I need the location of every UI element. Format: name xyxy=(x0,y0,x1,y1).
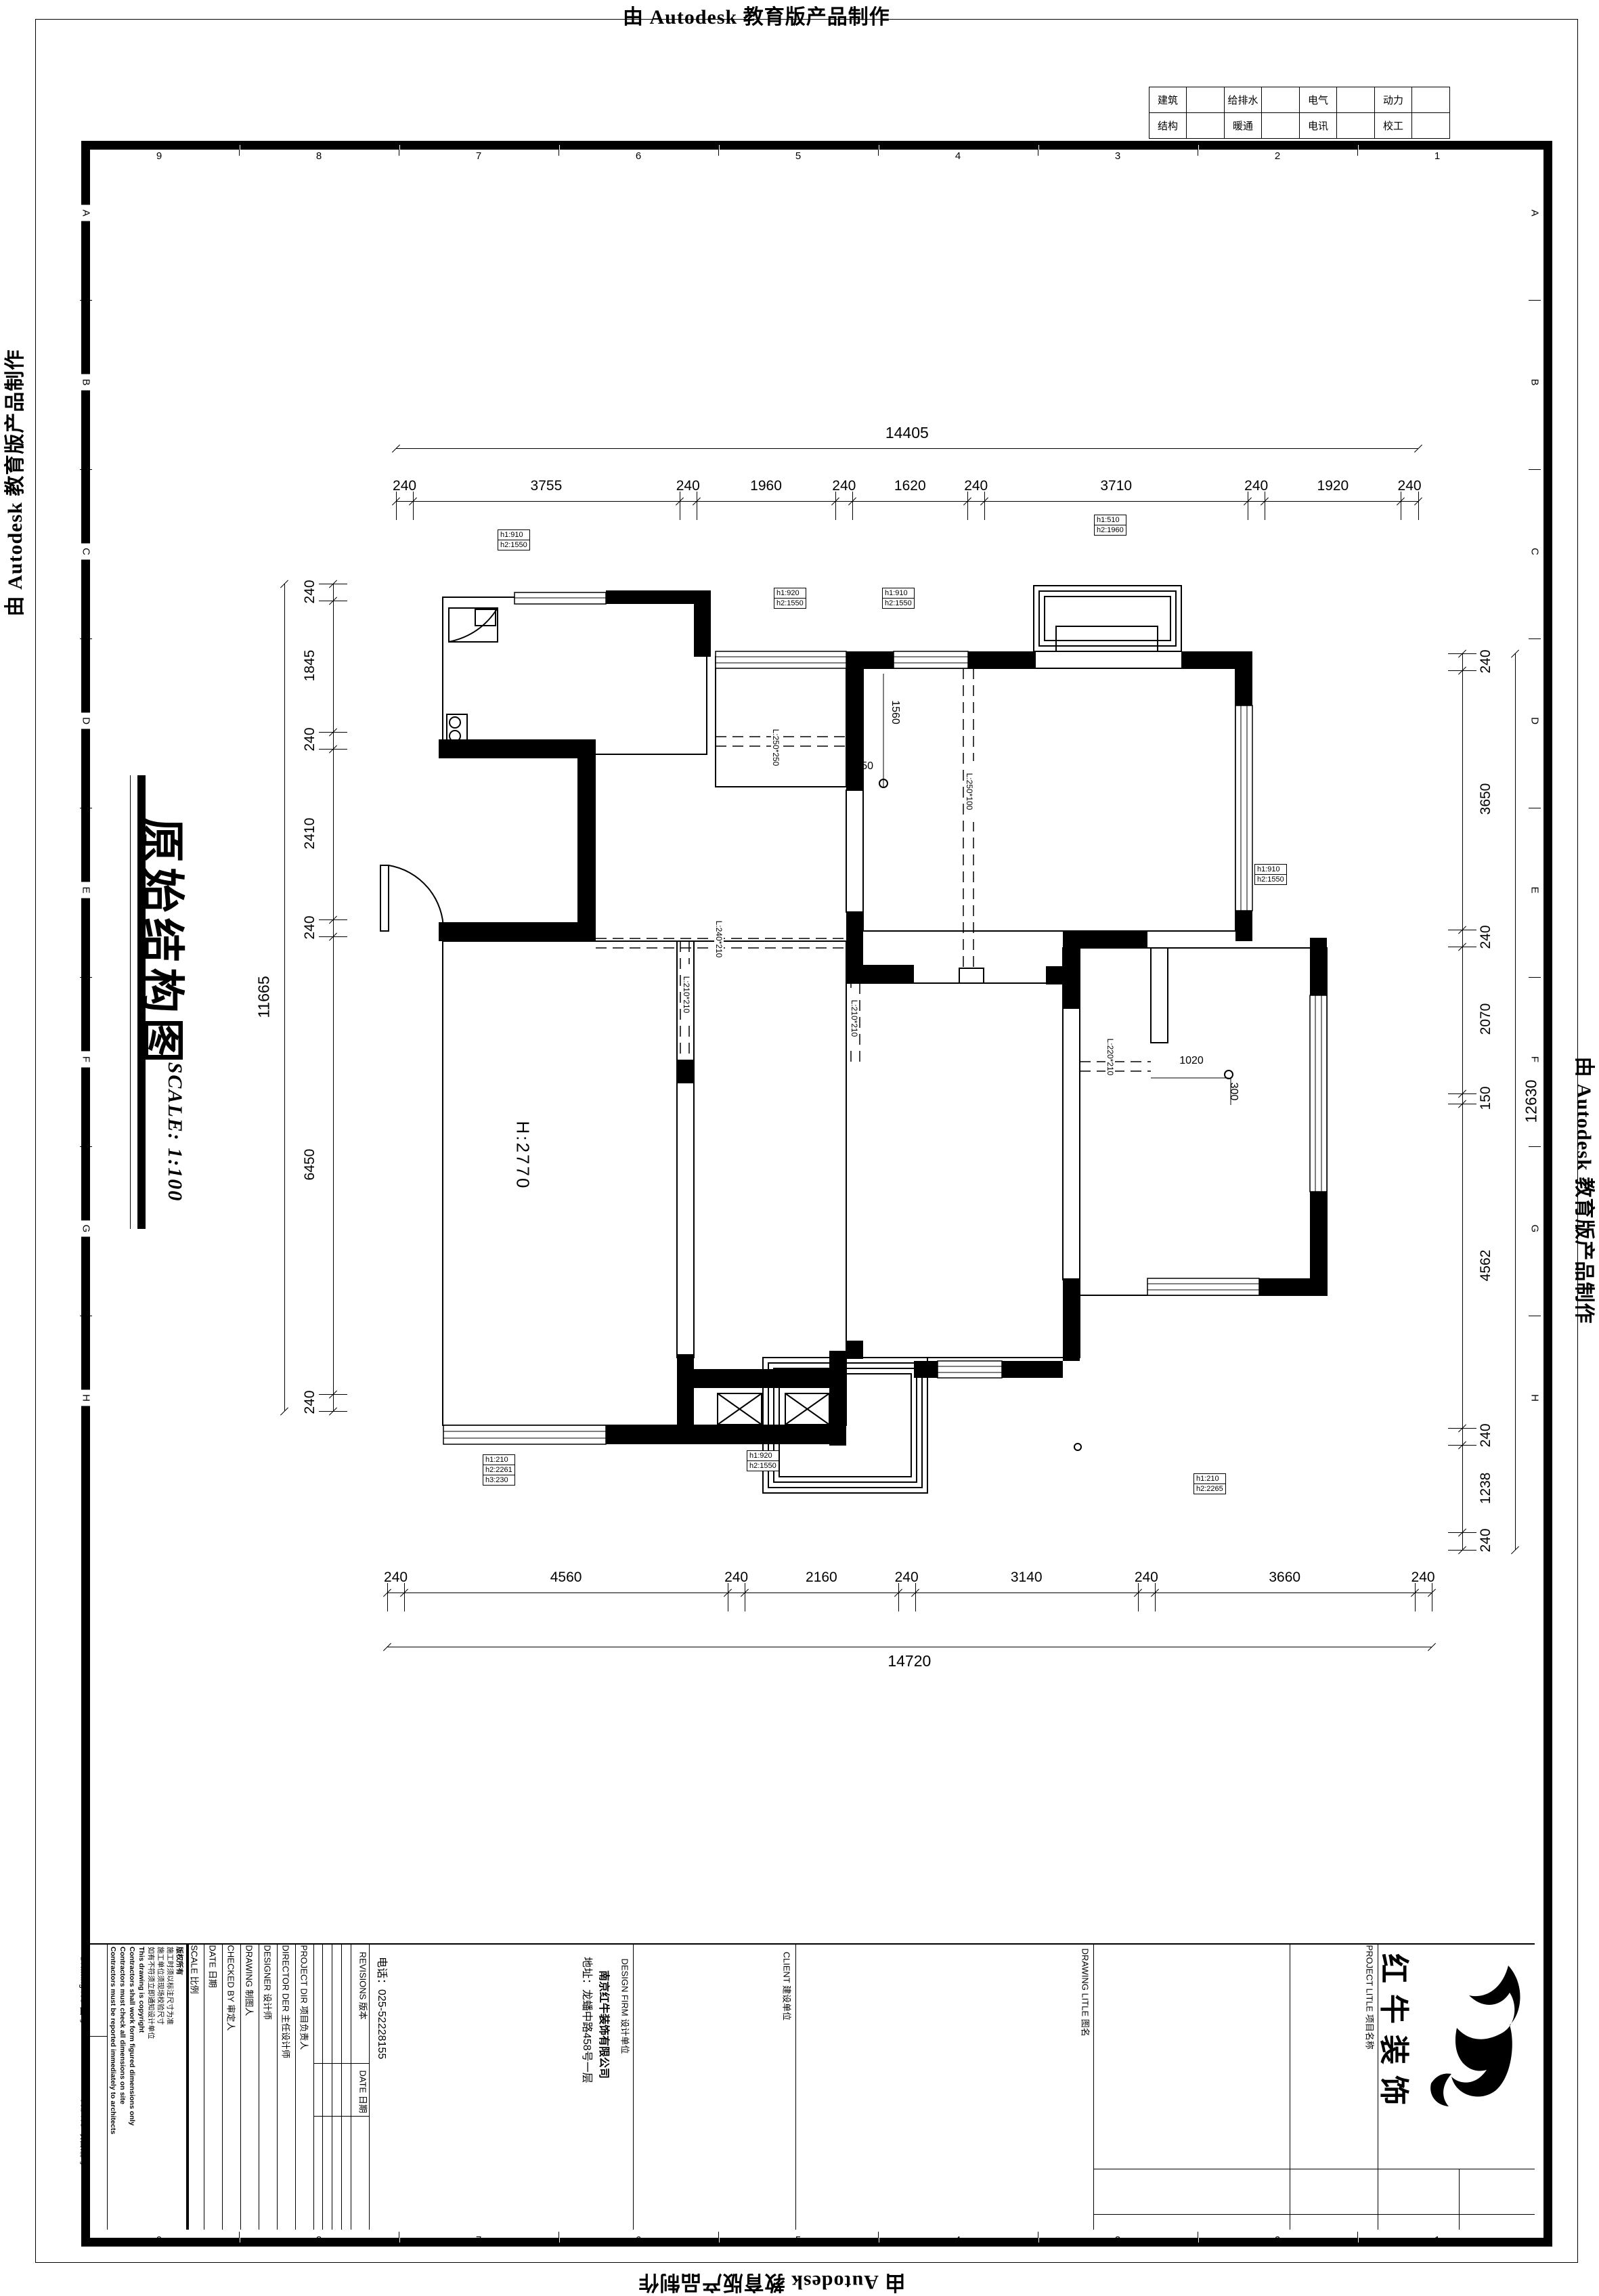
dim-label: 240 xyxy=(946,478,1007,494)
grid-ref-number: 2 xyxy=(1269,150,1286,162)
dim-label: 2160 xyxy=(791,1569,852,1586)
drawing-sheet: 由 Autodesk 教育版产品制作 由 Autodesk 教育版产品制作 由 … xyxy=(0,0,1599,2296)
window-height-row: h1:920 xyxy=(747,1451,779,1460)
dim-label: 3660 xyxy=(1254,1569,1315,1586)
design-firm-label: DESIGN FIRM 设计单位 xyxy=(619,1959,632,2094)
beam-size-label: L:250*100 xyxy=(965,761,974,822)
title-block-divider xyxy=(322,1945,323,2230)
room-height-label: H:2770 xyxy=(512,1115,533,1196)
dim-total-label: 14405 xyxy=(867,424,948,442)
dim-label: 3710 xyxy=(1086,478,1147,494)
grid-ref-letter: H xyxy=(1529,1390,1541,1406)
dim-ext xyxy=(1138,1583,1139,1611)
dim-ext xyxy=(1415,1583,1416,1611)
copyright-notes: 版权所有 施工时须以标注尺寸为准 施工单位须现场校验尺寸 如有不符须立即通知设计… xyxy=(105,1947,184,2228)
dim-ext xyxy=(396,492,397,520)
dim-ext xyxy=(1401,492,1401,520)
title-block-line xyxy=(1459,2169,1460,2230)
dim-ext xyxy=(1448,1532,1476,1533)
drawing-title-label: DRAWING LITLE 图名 xyxy=(1080,1949,1093,2084)
grid-ref-letter: E xyxy=(81,882,92,898)
dim-total-label: 14720 xyxy=(869,1652,950,1670)
consultant-cell: 给排水 xyxy=(1225,87,1262,113)
grid-tick xyxy=(1529,1146,1541,1147)
grid-tick xyxy=(80,977,92,978)
title-block-divider xyxy=(240,1945,241,2230)
autodesk-stamp-top: 由 Autodesk 教育版产品制作 xyxy=(623,0,890,30)
dim-ext xyxy=(680,492,680,520)
inline-dim: 1020 xyxy=(1171,1055,1212,1067)
dim-label: 3650 xyxy=(1478,768,1494,829)
title-block-divider xyxy=(277,1945,278,2230)
design-firm-company: 南京红牛装饰有限公司 xyxy=(597,1970,613,2106)
grid-ref-number: 9 xyxy=(151,150,167,162)
grid-ref-number: 1 xyxy=(1429,2234,1445,2246)
tb-col-projectdir: PROJECT DIR 项目负责人 xyxy=(299,1945,311,2081)
dim-ext xyxy=(852,492,853,520)
dim-label: 240 xyxy=(706,1569,767,1586)
title-block-line xyxy=(313,2063,369,2064)
dim-label: 240 xyxy=(1393,1569,1453,1586)
inline-dim: 350 xyxy=(833,760,873,773)
grid-tick xyxy=(1529,1316,1541,1316)
dim-label: 4560 xyxy=(535,1569,596,1586)
window-height-label: h1:910h2:1550 xyxy=(498,529,530,550)
dim-label: 240 xyxy=(1226,478,1287,494)
grid-ref-letter: C xyxy=(81,544,92,560)
grid-ref-number: 1 xyxy=(1429,150,1445,162)
title-block-divider xyxy=(795,1945,796,2230)
dim-total-line xyxy=(1515,653,1516,1550)
grid-tick xyxy=(399,2232,400,2243)
dim-ext xyxy=(1155,1583,1156,1611)
brand-logo-bull xyxy=(1422,1960,1530,2119)
grid-ref-number: 8 xyxy=(311,150,327,162)
design-firm-phone: 电话：025-52228155 xyxy=(375,1957,391,2126)
grid-ref-letter: A xyxy=(1529,205,1541,221)
dim-ext xyxy=(319,919,347,920)
dim-line xyxy=(1462,653,1463,1550)
dim-label: 240 xyxy=(1379,478,1440,494)
page-title: 原始结构图 xyxy=(148,818,198,1041)
dim-ext xyxy=(1265,492,1265,520)
grid-ref-number: 3 xyxy=(1110,150,1126,162)
beam-size-label: L:240*210 xyxy=(714,909,724,970)
grid-tick xyxy=(1357,2232,1359,2243)
window xyxy=(716,651,846,668)
consultant-cell: 电讯 xyxy=(1300,113,1337,139)
dim-ext xyxy=(319,936,347,937)
dim-line xyxy=(387,1593,1432,1593)
title-block-divider xyxy=(351,1945,351,2230)
dim-total-line xyxy=(387,1647,1432,1647)
window-height-label: h1:920h2:1550 xyxy=(774,588,806,609)
title-block-line xyxy=(1093,2169,1535,2169)
autodesk-stamp-left: 由 Autodesk 教育版产品制作 xyxy=(0,266,28,699)
grid-tick xyxy=(1198,145,1199,156)
title-block-line xyxy=(1093,2214,1535,2215)
scale-label: SCALE: 1:100 xyxy=(159,1051,186,1213)
grid-tick xyxy=(1529,469,1541,470)
autodesk-stamp-bottom: 由 Autodesk 教育版产品制作 xyxy=(555,2270,988,2296)
beam-size-label: L:250*250 xyxy=(771,717,781,778)
window xyxy=(1310,995,1327,1192)
consultant-cell: 动力 xyxy=(1375,87,1412,113)
dim-label: 1620 xyxy=(879,478,940,494)
window-height-row: h2:1960 xyxy=(1095,525,1126,535)
tb-col-drawing: DRAWING 制图人 xyxy=(244,1945,257,2081)
dim-ext xyxy=(967,492,968,520)
window-height-row: h1:910 xyxy=(1255,865,1286,874)
floor-plan xyxy=(379,562,1435,1523)
dim-label: 240 xyxy=(366,1569,426,1586)
dim-ext xyxy=(915,1583,916,1611)
brand-name: 红牛装饰 xyxy=(1384,1953,1418,2123)
grid-ref-number: 8 xyxy=(311,2234,327,2246)
window xyxy=(1147,1278,1259,1295)
window-height-row: h2:1550 xyxy=(1255,874,1286,884)
grid-ref-letter: E xyxy=(1529,882,1541,898)
tb-col-designer: DESIGNER 设计师 xyxy=(262,1945,275,2081)
job-no-label: Job NO 项目编号 xyxy=(79,2075,91,2190)
dim-label: 240 xyxy=(374,478,435,494)
tb-col-date: DATE 日期 xyxy=(207,1945,220,2081)
dim-ext xyxy=(1448,1093,1476,1094)
tb-col-director: DIRECTOR DER 主任设计师 xyxy=(280,1945,293,2081)
window-height-label: h1:210h2:2265 xyxy=(1193,1473,1226,1494)
dim-label: 240 xyxy=(876,1569,937,1586)
grid-tick xyxy=(239,145,240,156)
dim-ext xyxy=(1448,947,1476,947)
grid-tick xyxy=(718,2232,720,2243)
window-height-row: h2:1550 xyxy=(883,598,914,608)
dim-ext xyxy=(319,1411,347,1412)
grid-tick xyxy=(80,638,92,639)
title-block-divider xyxy=(259,1945,259,2230)
dim-ext xyxy=(1418,492,1419,520)
grid-tick xyxy=(399,145,400,156)
dim-label: 240 xyxy=(1478,1510,1494,1571)
dim-ext xyxy=(984,492,985,520)
window xyxy=(443,1425,606,1444)
dim-ext xyxy=(1248,492,1248,520)
dim-ext xyxy=(697,492,697,520)
window-height-row: h1:510 xyxy=(1095,515,1126,525)
grid-ref-letter: D xyxy=(81,713,92,729)
consultant-cell: 校工 xyxy=(1375,113,1412,139)
dim-label: 150 xyxy=(1478,1068,1494,1129)
grid-tick xyxy=(1198,2232,1199,2243)
dim-label: 240 xyxy=(302,1372,318,1433)
beam-size-label: L:210*210 xyxy=(850,988,859,1049)
dim-label: 4562 xyxy=(1478,1235,1494,1296)
dim-line xyxy=(333,584,334,1411)
dim-label: 2070 xyxy=(1478,989,1494,1049)
grid-tick xyxy=(558,145,560,156)
window-height-row: h1:910 xyxy=(883,588,914,598)
title-block-divider xyxy=(1093,1945,1094,2230)
grid-ref-number: 7 xyxy=(470,2234,487,2246)
grid-ref-number: 5 xyxy=(790,150,806,162)
title-block-divider xyxy=(341,1945,342,2230)
grid-ref-letter: B xyxy=(1529,374,1541,391)
consultant-cell: 电气 xyxy=(1300,87,1337,113)
grid-tick xyxy=(1038,2232,1039,2243)
beam-size-label: L:220*210 xyxy=(1105,1026,1115,1087)
dim-ext xyxy=(404,1583,405,1611)
dim-label: 6450 xyxy=(302,1134,318,1195)
window xyxy=(514,592,606,604)
dim-label: 240 xyxy=(814,478,875,494)
window-height-row: h1:910 xyxy=(498,530,529,540)
dim-ext xyxy=(835,492,836,520)
title-block-divider xyxy=(295,1945,296,2230)
grid-tick xyxy=(878,145,879,156)
title-block-divider xyxy=(313,1945,314,2230)
dim-ext xyxy=(319,601,347,601)
title-block-divider xyxy=(633,1945,634,2230)
dim-label: 240 xyxy=(1478,631,1494,692)
grid-tick xyxy=(718,145,720,156)
autodesk-stamp-right: 由 Autodesk 教育版产品制作 xyxy=(1571,974,1599,1407)
grid-tick xyxy=(80,808,92,808)
grid-tick xyxy=(1038,145,1039,156)
grid-ref-number: 2 xyxy=(1269,2234,1286,2246)
inline-dim: 300 xyxy=(1227,1071,1240,1112)
grid-ref-number: 6 xyxy=(630,2234,647,2246)
dim-ext xyxy=(1448,670,1476,671)
project-title-label: PROJECT LITLE 项目名称 xyxy=(1364,1945,1377,2081)
design-firm-address: 地址：龙蟠中路458号一层 xyxy=(580,1957,596,2126)
dim-label: 1920 xyxy=(1302,478,1363,494)
dim-ext xyxy=(1448,1428,1476,1429)
grid-tick xyxy=(1357,145,1359,156)
dim-ext xyxy=(319,749,347,750)
grid-ref-letter: B xyxy=(81,374,92,391)
grid-tick xyxy=(1529,977,1541,978)
window-height-label: h1:910h2:1550 xyxy=(882,588,915,609)
dim-ext xyxy=(387,1583,388,1611)
dim-total-line xyxy=(284,584,285,1411)
consultant-cell: 建筑 xyxy=(1149,87,1187,113)
dim-label: 1960 xyxy=(736,478,797,494)
grid-ref-letter: A xyxy=(81,205,92,221)
grid-ref-letter: H xyxy=(81,1390,92,1406)
grid-tick xyxy=(80,300,92,301)
consultant-cell: 结构 xyxy=(1149,113,1187,139)
title-block-divider xyxy=(332,1945,332,2230)
dim-total-label: 12630 xyxy=(1523,1060,1541,1142)
dim-label: 3140 xyxy=(996,1569,1057,1586)
window-height-row: h3:230 xyxy=(483,1475,514,1485)
window-height-label: h1:510h2:1960 xyxy=(1094,515,1126,536)
grid-ref-letter: C xyxy=(1529,544,1541,560)
inline-dim: 1560 xyxy=(889,692,901,733)
window-height-row: h1:210 xyxy=(1194,1474,1225,1483)
dim-label: 240 xyxy=(302,897,318,958)
client-label: CLIENT 建设单位 xyxy=(781,1952,794,2087)
title-block-divider xyxy=(222,1945,223,2230)
title-underline-thin xyxy=(130,775,131,1229)
grid-ref-number: 7 xyxy=(470,150,487,162)
grid-ref-number: 6 xyxy=(630,150,647,162)
dim-label: 240 xyxy=(657,478,718,494)
consultant-cell: 暖通 xyxy=(1225,113,1262,139)
grid-ref-number: 5 xyxy=(790,2234,806,2246)
dim-ext xyxy=(1448,1550,1476,1551)
revisions-date-label: DATE 日期 xyxy=(357,2071,370,2118)
grid-ref-letter: G xyxy=(81,1221,92,1237)
window-height-row: h2:1550 xyxy=(498,540,529,550)
dim-ext xyxy=(1448,1445,1476,1446)
dim-ext xyxy=(745,1583,745,1611)
dim-ext xyxy=(1432,1583,1432,1611)
dim-ext xyxy=(1448,653,1476,654)
grid-ref-number: 4 xyxy=(950,2234,966,2246)
window-height-row: h2:1550 xyxy=(747,1460,779,1471)
grid-tick xyxy=(1529,808,1541,808)
tb-col-checked: CHECKED BY 审定人 xyxy=(225,1945,238,2081)
drawing-no-label: Drawing NO 图号 xyxy=(79,1936,91,2045)
dim-label: 240 xyxy=(302,561,318,622)
window xyxy=(938,1361,1002,1378)
dim-ext xyxy=(319,732,347,733)
title-block-divider xyxy=(1290,1945,1290,2230)
window-height-label: h1:210h2:2261h3:230 xyxy=(483,1454,515,1486)
window-height-row: h2:1550 xyxy=(774,598,806,608)
dim-ext xyxy=(728,1583,728,1611)
dim-total-label: 11665 xyxy=(255,957,273,1038)
window-height-row: h2:2261 xyxy=(483,1465,514,1475)
window-height-label: h1:910h2:1550 xyxy=(1254,864,1287,885)
dim-label: 2410 xyxy=(302,803,318,864)
grid-tick xyxy=(239,2232,240,2243)
grid-tick xyxy=(878,2232,879,2243)
window-height-row: h1:210 xyxy=(483,1455,514,1465)
grid-ref-letter: D xyxy=(1529,713,1541,729)
grid-ref-letter: G xyxy=(1529,1221,1541,1237)
revisions-label: REVISIONS 版本 xyxy=(357,1952,370,2054)
dim-total-line xyxy=(396,448,1418,449)
grid-tick xyxy=(1529,300,1541,301)
dim-label: 1845 xyxy=(302,635,318,696)
window xyxy=(1235,706,1252,911)
dim-label: 240 xyxy=(1116,1569,1177,1586)
grid-ref-letter: F xyxy=(81,1052,92,1068)
consultant-table: 建筑 给排水 电气 动力 结构 暖通 电讯 校工 xyxy=(1149,87,1450,139)
dim-ext xyxy=(898,1583,899,1611)
grid-tick xyxy=(80,1316,92,1316)
dim-label: 240 xyxy=(302,709,318,770)
dim-ext xyxy=(319,1394,347,1395)
grid-tick xyxy=(558,2232,560,2243)
grid-tick xyxy=(80,469,92,470)
dim-ext xyxy=(319,584,347,584)
window xyxy=(894,651,968,668)
grid-ref-number: 9 xyxy=(151,2234,167,2246)
dim-label: 240 xyxy=(1478,907,1494,968)
beam-size-label: L:210*210 xyxy=(682,964,691,1025)
grid-ref-number: 4 xyxy=(950,150,966,162)
dim-label: 240 xyxy=(1478,1405,1494,1466)
window-height-row: h1:920 xyxy=(774,588,806,598)
window-height-row: h2:2265 xyxy=(1194,1483,1225,1494)
dim-label: 3755 xyxy=(516,478,577,494)
grid-tick xyxy=(80,1146,92,1147)
grid-tick xyxy=(1529,638,1541,639)
window-height-label: h1:920h2:1550 xyxy=(747,1450,779,1471)
grid-ref-number: 3 xyxy=(1110,2234,1126,2246)
tb-col-scale: SCALE 比例 xyxy=(189,1945,202,2081)
dim-ext xyxy=(1448,1104,1476,1104)
dim-ext xyxy=(413,492,414,520)
dim-ext xyxy=(1448,930,1476,930)
title-block-divider xyxy=(204,1945,204,2230)
